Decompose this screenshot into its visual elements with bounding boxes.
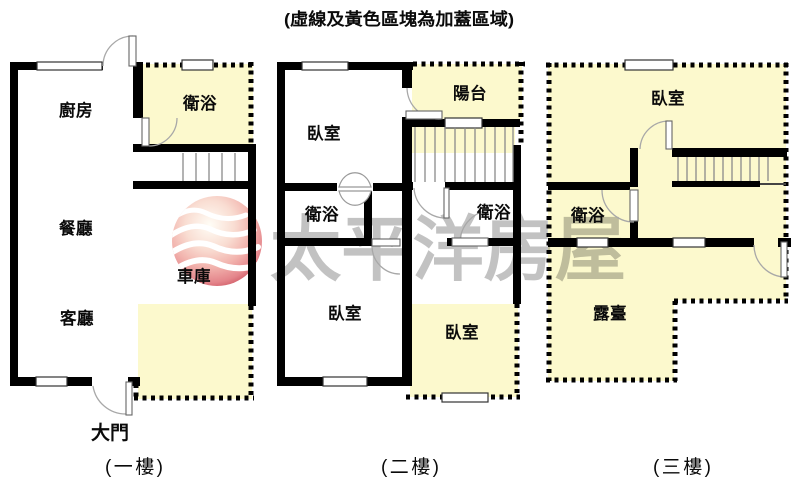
f1-bath-window <box>182 60 213 70</box>
f3-bath-window <box>577 238 608 247</box>
room-label-bath-f2-right: 衛浴 <box>476 202 511 222</box>
f2-stair-addition-fill <box>412 127 515 153</box>
f3-bath-door-leaf <box>630 190 638 221</box>
main-entrance-label: 大門 <box>91 421 129 444</box>
floor-plan-image: 太平洋房屋 <box>0 0 800 486</box>
f2-double-door-upper <box>339 173 371 187</box>
f2-bedroom-bl-window <box>323 377 367 386</box>
floor1-stairs <box>183 153 235 181</box>
f2-balcony-wall-window <box>445 118 482 128</box>
floor1-name: (一樓) <box>105 456 163 478</box>
room-label-terrace: 露臺 <box>593 303 627 323</box>
f2-bedroom-br-window <box>442 393 488 402</box>
f3-terrace-door-leaf <box>781 242 787 277</box>
page-title: (虛線及黃色區塊為加蓋區域) <box>284 9 514 29</box>
room-label-garage: 車庫 <box>177 266 211 286</box>
floor3-name: (三樓) <box>653 456 711 478</box>
f1-bath-door-leaf <box>142 118 149 146</box>
f2-bedroom-addition-fill <box>410 304 518 397</box>
f1-parking-addition-fill <box>138 304 252 399</box>
f3-bedroom-window <box>625 60 673 70</box>
f1-main-door-arc <box>93 386 126 414</box>
room-label-kitchen: 廚房 <box>59 100 93 120</box>
room-label-bedroom-top: 臥室 <box>307 123 341 143</box>
f1-main-door-leaf <box>126 382 132 415</box>
room-label-bath-f2-left: 衛浴 <box>304 204 339 224</box>
f1-kitchen-door-leaf <box>129 36 136 66</box>
room-label-bedroom-bl: 臥室 <box>328 303 362 323</box>
floor-plan-svg: 太平洋房屋 <box>0 0 800 486</box>
room-label-bath-f1: 衛浴 <box>182 93 217 113</box>
f1-living-window <box>36 377 67 386</box>
f2-bedroom-bl-door-leaf <box>372 239 400 246</box>
f2-stairs-door-leaf <box>444 188 449 218</box>
room-label-dining: 餐廳 <box>59 218 93 238</box>
room-label-living: 客廳 <box>59 308 94 328</box>
room-label-bedroom-f3: 臥室 <box>651 88 685 108</box>
room-label-balcony: 陽台 <box>453 83 487 103</box>
f3-bedroom-door-leaf <box>666 121 672 149</box>
f1-kitchen-window <box>37 62 102 70</box>
f2-balcony-door-leaf <box>406 111 442 119</box>
room-label-bedroom-br: 臥室 <box>445 322 479 342</box>
f2-bath-right-door-leaf <box>452 238 488 246</box>
floor2-name: (二樓) <box>381 456 439 478</box>
f3-hall-window <box>673 238 705 247</box>
room-label-bath-f3: 衛浴 <box>570 205 605 225</box>
f2-bedroom-top-window <box>302 62 348 70</box>
